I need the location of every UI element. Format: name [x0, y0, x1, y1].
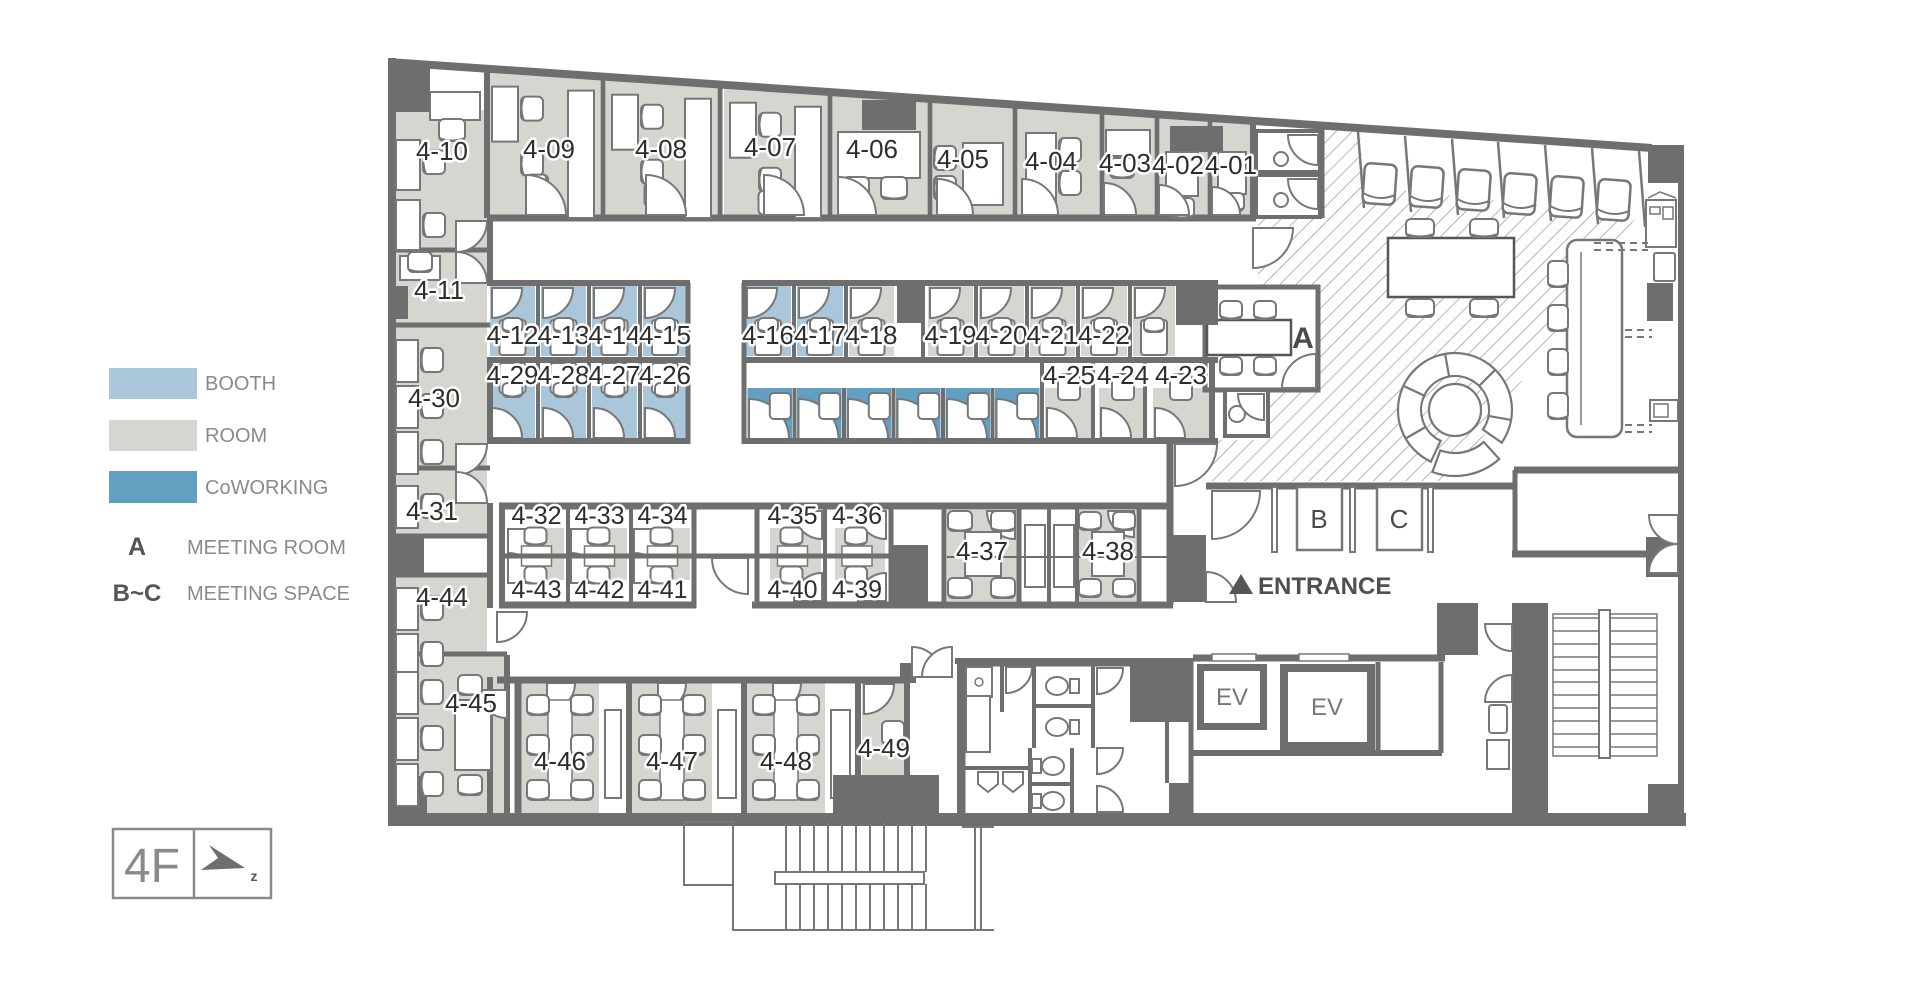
svg-text:4-44: 4-44 [416, 582, 468, 612]
svg-text:4-12: 4-12 [486, 320, 538, 350]
svg-text:4-47: 4-47 [646, 746, 698, 776]
svg-text:CoWORKING: CoWORKING [205, 477, 328, 499]
svg-text:4-19: 4-19 [924, 320, 976, 350]
svg-text:ENTRANCE: ENTRANCE [1258, 573, 1391, 600]
svg-text:4-15: 4-15 [639, 320, 691, 350]
svg-text:4-41: 4-41 [637, 576, 687, 604]
svg-text:ROOM: ROOM [205, 425, 267, 447]
svg-text:4-18: 4-18 [845, 320, 897, 350]
svg-text:A: A [128, 533, 146, 561]
svg-text:EV: EV [1311, 694, 1343, 721]
svg-text:4F: 4F [124, 840, 180, 893]
svg-text:4-46: 4-46 [534, 746, 586, 776]
svg-text:4-07: 4-07 [744, 132, 796, 162]
svg-text:4-14: 4-14 [588, 320, 640, 350]
svg-text:4-36: 4-36 [832, 502, 882, 530]
svg-text:4-01: 4-01 [1205, 150, 1257, 180]
svg-text:4-08: 4-08 [635, 134, 687, 164]
svg-text:4-05: 4-05 [937, 144, 989, 174]
svg-text:4-39: 4-39 [832, 576, 882, 604]
svg-text:4-02: 4-02 [1152, 150, 1204, 180]
svg-text:4-26: 4-26 [639, 360, 691, 390]
svg-text:4-24: 4-24 [1097, 360, 1149, 390]
svg-text:4-35: 4-35 [767, 502, 817, 530]
svg-text:4-11: 4-11 [414, 275, 464, 305]
svg-text:4-32: 4-32 [511, 502, 561, 530]
svg-text:4-22: 4-22 [1078, 320, 1130, 350]
svg-text:4-04: 4-04 [1025, 146, 1077, 176]
svg-text:C: C [1390, 504, 1409, 534]
svg-text:B~C: B~C [113, 580, 162, 607]
svg-text:MEETING SPACE: MEETING SPACE [187, 583, 350, 605]
svg-text:4-34: 4-34 [637, 502, 687, 530]
svg-text:4-21: 4-21 [1026, 320, 1078, 350]
svg-text:4-03: 4-03 [1099, 148, 1151, 178]
svg-text:BOOTH: BOOTH [205, 373, 276, 395]
svg-text:4-38: 4-38 [1082, 536, 1134, 566]
svg-text:4-48: 4-48 [760, 746, 812, 776]
svg-text:4-42: 4-42 [574, 576, 624, 604]
svg-text:4-23: 4-23 [1155, 360, 1207, 390]
svg-text:4-31: 4-31 [406, 496, 458, 526]
svg-text:4-40: 4-40 [767, 576, 817, 604]
svg-text:4-37: 4-37 [956, 536, 1008, 566]
svg-text:B: B [1310, 504, 1327, 534]
svg-text:4-27: 4-27 [588, 360, 640, 390]
svg-text:z: z [251, 868, 258, 884]
svg-text:4-13: 4-13 [537, 320, 589, 350]
svg-text:4-28: 4-28 [537, 360, 589, 390]
svg-text:4-49: 4-49 [858, 733, 910, 763]
svg-text:4-30: 4-30 [408, 383, 460, 413]
svg-text:4-45: 4-45 [445, 688, 497, 718]
svg-text:A: A [1292, 322, 1314, 355]
svg-text:4-16: 4-16 [742, 320, 794, 350]
svg-text:4-06: 4-06 [846, 134, 898, 164]
svg-text:4-10: 4-10 [416, 136, 468, 166]
svg-text:MEETING ROOM: MEETING ROOM [187, 537, 346, 559]
svg-text:4-33: 4-33 [574, 502, 624, 530]
svg-text:4-17: 4-17 [794, 320, 846, 350]
svg-text:4-29: 4-29 [486, 360, 538, 390]
svg-text:4-20: 4-20 [975, 320, 1027, 350]
svg-text:EV: EV [1216, 684, 1248, 711]
svg-text:4-09: 4-09 [523, 134, 575, 164]
svg-text:4-25: 4-25 [1043, 360, 1095, 390]
svg-text:4-43: 4-43 [511, 576, 561, 604]
